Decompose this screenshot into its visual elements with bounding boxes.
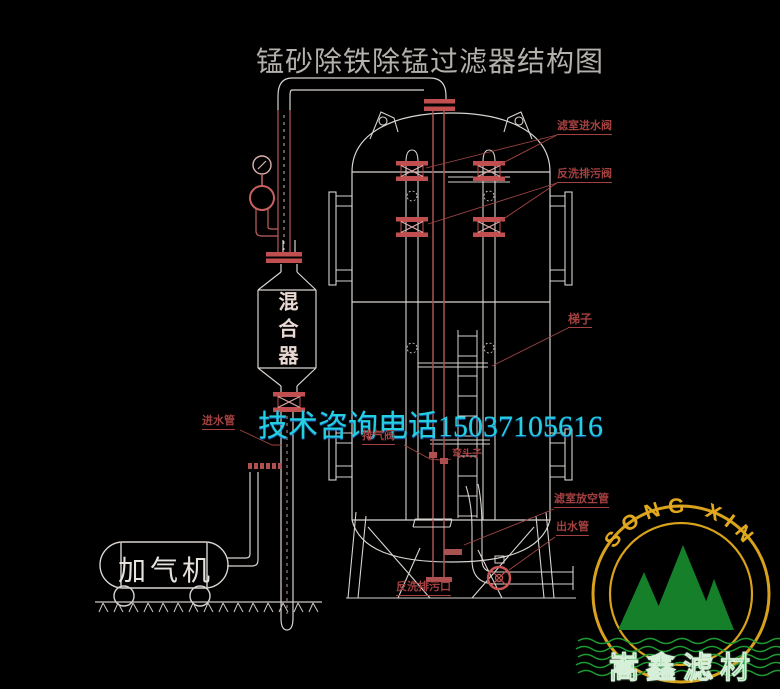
phone-watermark: 技术咨询电话15037105616	[258, 401, 603, 445]
aerator-pipe	[227, 472, 258, 566]
ground-line	[95, 602, 322, 612]
label-elbow: 弯头子	[452, 450, 482, 462]
diagram-stage: SONG XIN 锰砂除铁除锰过滤器结构图 技术咨询电话15037105616 …	[0, 0, 780, 689]
aerator-label: 加气机	[104, 549, 228, 589]
label-backwash-drain-valve: 反洗排污阀	[557, 169, 612, 183]
mixer-label: 混合器	[276, 291, 296, 372]
filter-inlet-valves	[396, 161, 505, 181]
pressure-gauge-assembly	[250, 156, 278, 236]
mixer-flanges	[266, 252, 302, 263]
filter-tank	[352, 113, 550, 562]
label-inlet-pipe: 进水管	[202, 416, 235, 430]
backwash-valves	[396, 217, 505, 237]
label-outlet-pipe: 出水管	[556, 522, 589, 536]
company-name: 嵩鑫滤材	[593, 643, 773, 687]
label-backwash-drain-outlet: 反洗排污口	[396, 582, 451, 596]
label-filter-vent-pipe: 滤室放空管	[554, 494, 609, 508]
label-exhaust-valve: 排气阀	[362, 431, 395, 445]
label-filter-inlet-valve: 滤室进水阀	[557, 121, 612, 135]
overhead-pipe	[278, 78, 446, 110]
lifting-lugs	[370, 112, 532, 139]
drawing-title: 锰砂除铁除锰过滤器结构图	[256, 40, 636, 80]
logo-mountains	[618, 545, 734, 630]
label-ladder: 梯子	[568, 313, 592, 328]
mixer-riser-pipe	[278, 110, 290, 252]
